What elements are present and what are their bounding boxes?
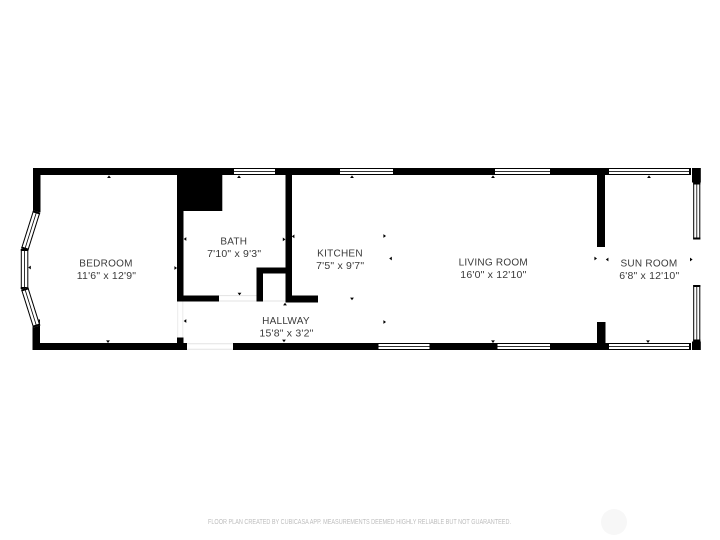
svg-text:11'6" x 12'9": 11'6" x 12'9" (77, 270, 136, 282)
svg-text:15'8" x 3'2": 15'8" x 3'2" (259, 328, 313, 340)
svg-text:16'0" x 12'10": 16'0" x 12'10" (460, 269, 526, 281)
svg-text:BEDROOM: BEDROOM (79, 258, 132, 269)
svg-text:LIVING ROOM: LIVING ROOM (459, 257, 528, 268)
svg-text:FLOOR PLAN CREATED BY CUBICASA: FLOOR PLAN CREATED BY CUBICASA APP. MEAS… (208, 519, 511, 526)
svg-text:7'10" x 9'3": 7'10" x 9'3" (207, 248, 261, 260)
svg-text:SUN ROOM: SUN ROOM (621, 259, 678, 270)
svg-text:BATH: BATH (220, 236, 247, 247)
svg-text:HALLWAY: HALLWAY (262, 316, 310, 327)
svg-text:6'8" x 12'10": 6'8" x 12'10" (619, 270, 679, 282)
svg-text:7'5" x 9'7": 7'5" x 9'7" (316, 260, 364, 272)
svg-text:KITCHEN: KITCHEN (317, 248, 363, 259)
